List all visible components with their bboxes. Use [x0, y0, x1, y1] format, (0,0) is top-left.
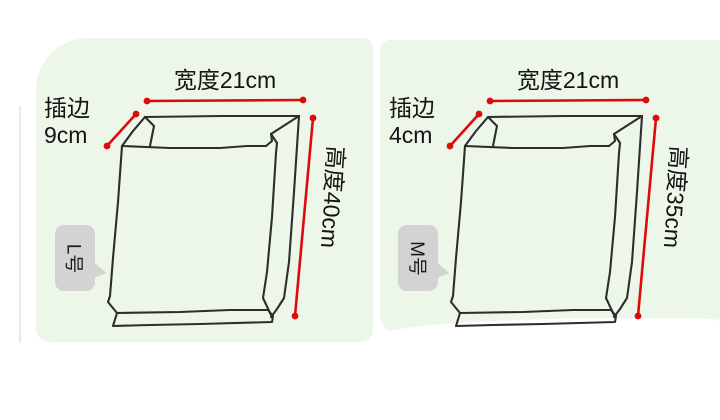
gusset-label-l-value: 9cm: [44, 122, 90, 149]
width-label-l: 宽度21cm: [146, 67, 304, 94]
bag-figure-l: [104, 97, 317, 326]
size-badge-l-text: L号: [61, 243, 88, 273]
width-label-m: 宽度21cm: [489, 67, 647, 94]
bag-sketch-layer: [0, 0, 720, 420]
size-badge-l: L号: [55, 225, 95, 291]
gusset-label-m-value: 4cm: [389, 122, 435, 149]
size-badge-m: M号: [398, 225, 438, 291]
gusset-label-m-text: 插边: [389, 95, 435, 122]
bag-figure-m: [447, 97, 660, 326]
gusset-label-m: 插边 4cm: [389, 95, 435, 149]
gusset-label-l: 插边 9cm: [44, 95, 90, 149]
gusset-label-l-text: 插边: [44, 95, 90, 122]
size-badge-m-text: M号: [404, 241, 431, 276]
product-dimension-image: 宽度21cm 插边 9cm 高度40cm L号 宽度21cm 插边 4cm 高度…: [0, 0, 720, 420]
